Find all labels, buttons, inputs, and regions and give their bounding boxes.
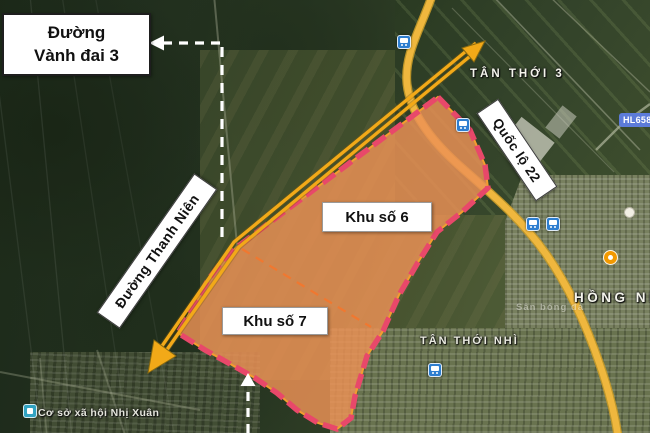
ring-road-line2: Vành đai 3 bbox=[34, 45, 119, 68]
bus-stop-icon[interactable] bbox=[526, 217, 540, 231]
place-label-tan-thoi-nhi: TÂN THỚI NHÌ bbox=[420, 335, 519, 347]
poi-white-icon[interactable] bbox=[624, 207, 635, 218]
satellite-map-screenshot[interactable]: TÂN THỚI 3 TÂN THỚI NHÌ HỒNG NHÀ Sân bón… bbox=[0, 0, 650, 433]
place-label-co-so-xa-hoi: Cơ sở xã hội Nhị Xuân bbox=[38, 407, 159, 419]
label-box-zone-6: Khu số 6 bbox=[322, 202, 432, 232]
bus-stop-icon[interactable] bbox=[428, 363, 442, 377]
label-box-zone-7: Khu số 7 bbox=[222, 307, 328, 335]
bus-stop-icon[interactable] bbox=[546, 217, 560, 231]
place-label-san-bong-da: Sân bóng đá bbox=[516, 302, 584, 313]
place-label-tan-thoi-3: TÂN THỚI 3 bbox=[470, 68, 565, 80]
road-badge-hl658: HL658 bbox=[619, 113, 650, 127]
community-poi-icon[interactable] bbox=[23, 404, 37, 418]
place-label-hong-nha: HỒNG NHÀ bbox=[574, 290, 650, 305]
label-box-ring-road-3: Đường Vành đai 3 bbox=[2, 13, 151, 76]
bus-stop-icon[interactable] bbox=[456, 118, 470, 132]
poi-orange-icon[interactable] bbox=[603, 250, 618, 265]
ring-road-line1: Đường bbox=[48, 22, 105, 45]
bus-stop-icon[interactable] bbox=[397, 35, 411, 49]
south-pointer bbox=[241, 373, 256, 433]
